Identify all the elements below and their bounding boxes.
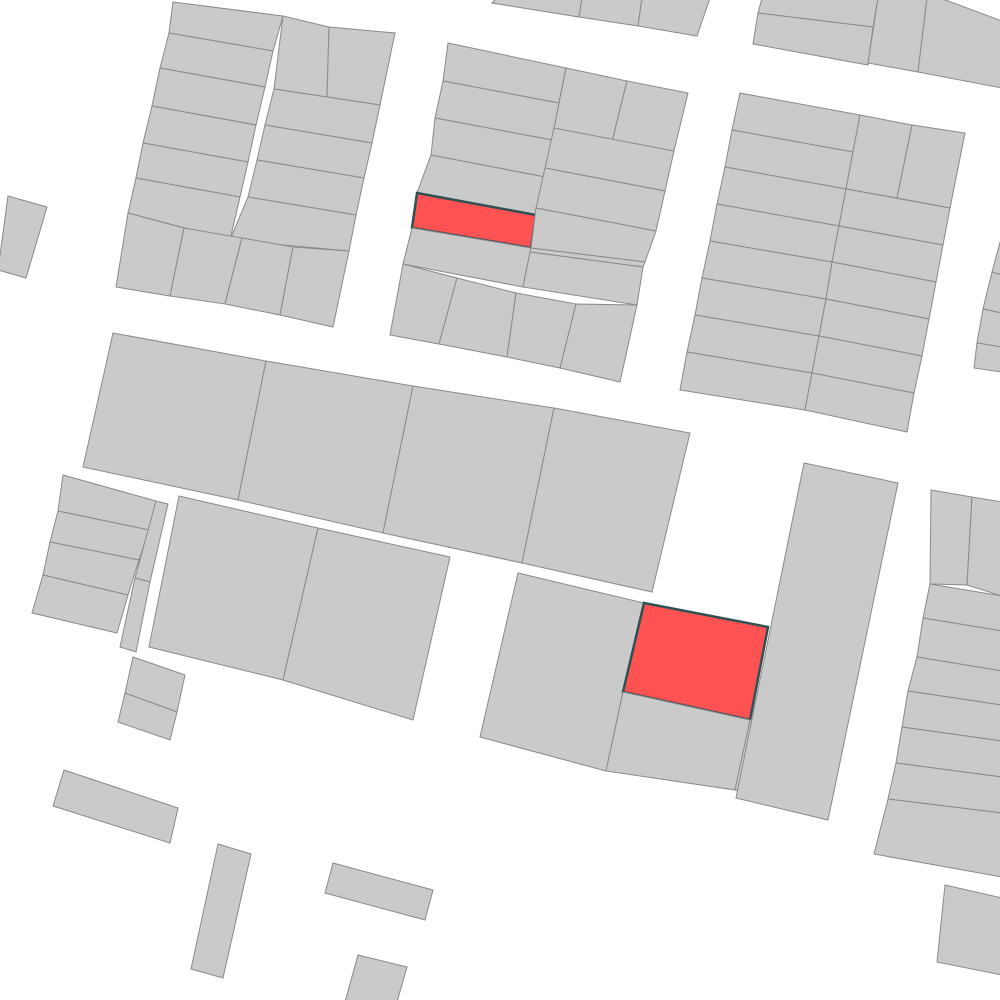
map-viewport[interactable]	[0, 0, 1000, 1000]
parcel[interactable]	[345, 955, 407, 1000]
parcel[interactable]	[974, 343, 1000, 372]
parcel[interactable]	[918, 0, 1000, 88]
parcel[interactable]	[83, 333, 266, 500]
block-top-strip	[492, 0, 710, 36]
parcel[interactable]	[53, 770, 178, 843]
left-edge-sliver	[0, 196, 47, 278]
block-top-corner	[753, 0, 1000, 88]
parcel[interactable]	[238, 361, 413, 533]
map-svg[interactable]	[0, 0, 1000, 1000]
parcel[interactable]	[325, 863, 433, 920]
block-bottom-middle	[480, 573, 768, 792]
block-top-left	[116, 2, 395, 327]
left-small-block	[118, 657, 185, 740]
parcel[interactable]	[967, 497, 1000, 596]
block-top-right	[680, 93, 965, 432]
bottom-right-parcel	[937, 885, 1000, 975]
parcel[interactable]	[983, 272, 1000, 313]
right-column	[874, 490, 1000, 877]
parcel[interactable]	[492, 0, 582, 17]
parcel[interactable]	[937, 885, 1000, 975]
parcel[interactable]	[327, 27, 395, 105]
parcel[interactable]	[0, 196, 47, 278]
parcel[interactable]	[992, 235, 1000, 275]
scattered-south	[53, 770, 433, 1000]
right-edge-slivers	[974, 235, 1000, 372]
parcel[interactable]	[579, 0, 642, 26]
parcel[interactable]	[638, 0, 710, 36]
parcel[interactable]	[191, 844, 251, 978]
parcel[interactable]	[977, 309, 1000, 347]
parcel[interactable]	[874, 799, 1000, 877]
parcel[interactable]	[280, 247, 349, 327]
parcel[interactable]	[274, 16, 329, 97]
block-top-middle	[390, 43, 688, 382]
parcel[interactable]	[930, 490, 972, 585]
parcel[interactable]	[868, 0, 927, 72]
